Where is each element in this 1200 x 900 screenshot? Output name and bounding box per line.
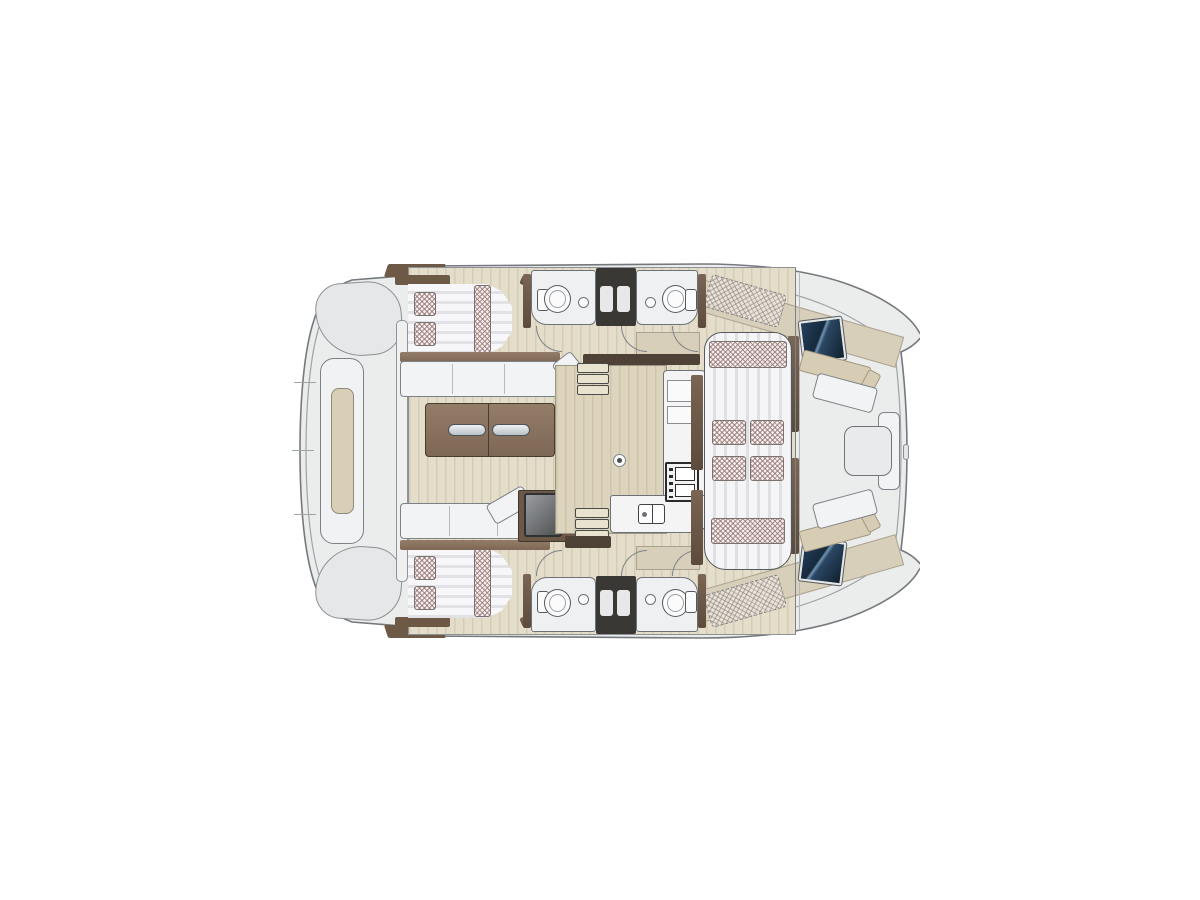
salon-table [425,403,555,457]
starboard-head-toilet [544,589,571,617]
bow-cleat [903,444,909,460]
toilet-tank4 [685,591,697,613]
aft-bench-cushion [331,388,354,514]
head-wall-left-bottom [523,574,531,628]
dinette-wood-left-2 [691,490,703,565]
catamaran-floor-plan [288,262,920,640]
port-head-toilet [544,285,571,313]
bed-runner [474,285,491,353]
forward-cockpit-table [844,426,892,476]
forward-bulkhead-line [795,268,796,634]
shower-door-panel [617,590,630,616]
companionway-steps-top2 [577,374,609,384]
shower-door-panel [617,286,630,312]
sink-faucet [642,512,647,517]
companionway-steps-top3 [577,385,609,395]
bed-pillow [414,292,436,316]
platform-step-line-1 [294,382,316,383]
starboard-head-sink3 [645,594,656,605]
toilet-tank2 [685,289,697,311]
dinette-cushion [712,456,746,481]
starboard-head-sink2 [645,297,656,308]
sink-divider [652,505,653,523]
salon-table-handle-left [448,424,486,436]
salon-sofa-top [400,361,558,397]
head-wall-right-top [698,274,706,328]
bed-pillow [414,322,436,346]
salon-table-handle-right [492,424,530,436]
galley-sink [638,504,665,524]
stove-knobs [669,468,673,498]
cabin-trim-bottom [395,617,450,627]
cabin-trim-top [395,275,450,285]
platform-step-line-2 [292,450,314,451]
bed-runner [474,549,491,617]
floor-plan-canvas [0,0,1200,900]
head-wall-left-top [523,274,531,328]
table-leg-mount [613,454,626,467]
dinette-wood-left-1 [691,375,703,470]
shower-door-panel [600,286,613,312]
bed-pillow [414,586,436,610]
port-head-sink [578,297,589,308]
dinette-band-top [709,341,787,368]
dinette-cushion [750,456,784,481]
salon-table-seam [488,404,489,456]
bed-pillow [414,556,436,580]
dinette-cushion [712,420,746,445]
companionway-steps-bottom2 [575,519,609,529]
shower-door-panel [600,590,613,616]
companionway-steps-bottom [575,508,609,518]
mount-dot [617,458,622,463]
starboard-head-sink [578,594,589,605]
platform-step-line-3 [294,514,316,515]
dinette-cushion [750,420,784,445]
galley-bulkhead-bottom [565,536,611,548]
dinette-band-bottom [711,518,785,544]
head-wall-right-bottom [698,574,706,628]
companionway-steps-top [577,363,609,373]
